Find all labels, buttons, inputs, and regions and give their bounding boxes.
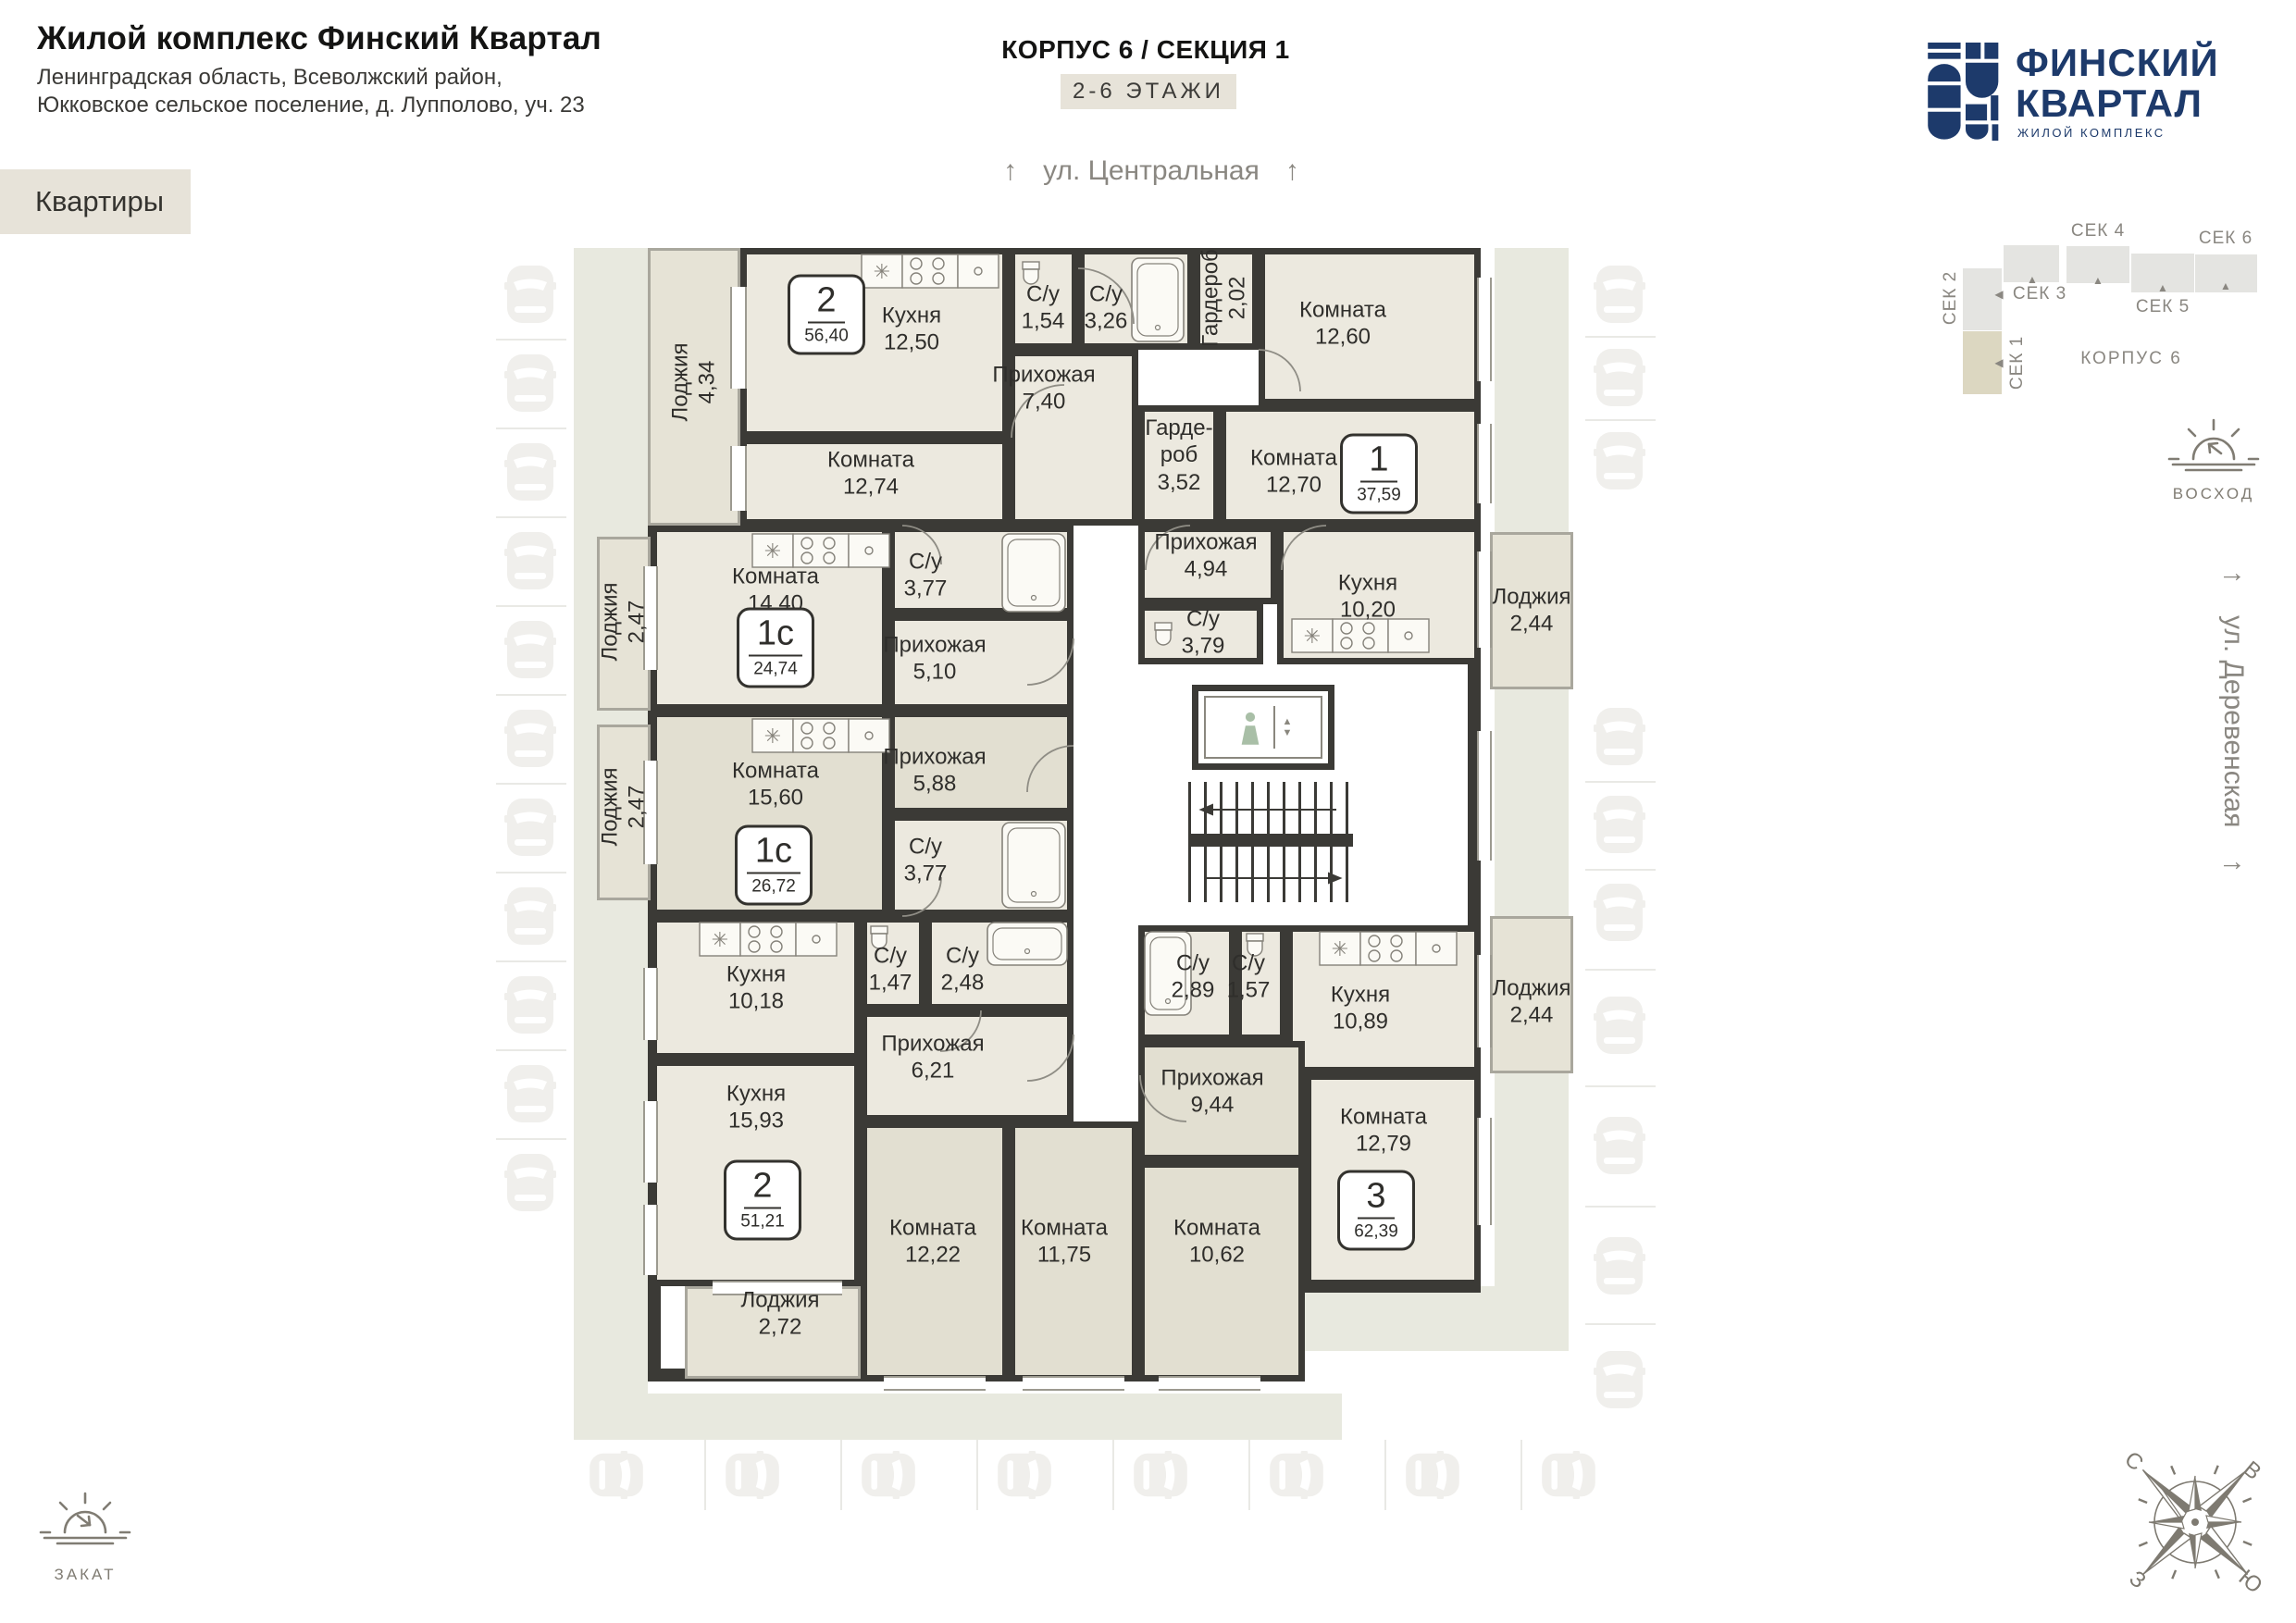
apartment-area: 24,74 [745, 657, 806, 680]
apartment-rooms-count: 1с [749, 614, 802, 656]
room-label-su379: С/у3,79 [1182, 606, 1225, 661]
room-name: Лоджия [597, 582, 624, 661]
apartment-badge-a2: 137,59 [1340, 433, 1418, 514]
room-name: Комната [732, 564, 819, 590]
room-area: 12,74 [827, 474, 914, 501]
room-label-su147: С/у1,47 [869, 943, 912, 997]
room-label-loggia247b: Лоджия2,47 [597, 767, 652, 846]
room-name: Комната [732, 758, 819, 785]
room-label-hall494: Прихожая4,94 [1154, 529, 1257, 584]
room-label-hall944: Прихожая9,44 [1160, 1065, 1263, 1120]
room-name: Прихожая [992, 362, 1095, 389]
room-area: 1,57 [1227, 977, 1271, 1004]
room-name: С/у [1022, 281, 1065, 308]
room-name: С/у [941, 943, 985, 970]
room-name: С/у [1085, 281, 1128, 308]
room-name: Лоджия [1492, 975, 1570, 1002]
room-area: 2,72 [740, 1314, 819, 1341]
room-label-hall740: Прихожая7,40 [992, 362, 1095, 416]
room-area: 10,20 [1338, 597, 1397, 624]
room-area: 1,54 [1022, 308, 1065, 335]
apartment-badge-a6: 362,39 [1337, 1170, 1415, 1250]
room-name: Лоджия [740, 1287, 819, 1314]
room-area: 2,47 [624, 582, 651, 661]
room-label-loggia434: Лоджия4,34 [667, 342, 722, 421]
room-name: Прихожая [881, 1031, 984, 1058]
apartment-badge-a1: 256,40 [788, 274, 865, 354]
room-label-kit1593: Кухня15,93 [726, 1081, 786, 1135]
room-area: 15,93 [726, 1108, 786, 1134]
apartment-badge-a4: 1с26,72 [735, 824, 813, 905]
room-area: 2,44 [1492, 1002, 1570, 1029]
room-name: Лоджия [1492, 584, 1570, 611]
apartment-rooms-count: 3 [1358, 1177, 1394, 1219]
room-name: Кухня [726, 1081, 786, 1108]
room-area: 4,94 [1154, 556, 1257, 583]
room-label-su289: С/у2,89 [1172, 950, 1215, 1005]
room-area: 12,22 [889, 1242, 976, 1269]
apartment-rooms-count: 2 [744, 1167, 780, 1208]
room-label-loggia244b: Лоджия2,44 [1492, 975, 1570, 1030]
room-area: 4,34 [694, 342, 721, 421]
room-area: 1,47 [869, 970, 912, 997]
room-name: Прихожая [883, 744, 986, 771]
room-name: С/у [869, 943, 912, 970]
room-name: Комната [889, 1215, 976, 1242]
room-label-room1175: Комната11,75 [1021, 1215, 1108, 1270]
room-label-su377b: С/у3,77 [904, 834, 948, 888]
room-label-room1222: Комната12,22 [889, 1215, 976, 1270]
room-name: Комната [1173, 1215, 1260, 1242]
room-area: 2,44 [1492, 611, 1570, 638]
apartment-area: 51,21 [732, 1209, 793, 1233]
room-area: 5,10 [883, 659, 986, 686]
room-label-loggia272: Лоджия2,72 [740, 1287, 819, 1342]
room-area: 2,47 [624, 767, 651, 846]
room-label-kit1089: Кухня10,89 [1331, 982, 1390, 1036]
room-name: С/у [904, 834, 948, 861]
room-area: 6,21 [881, 1058, 984, 1084]
room-label-room1062: Комната10,62 [1173, 1215, 1260, 1270]
room-name: Комната [1250, 445, 1337, 472]
room-name: Комната [827, 447, 914, 474]
room-name: Гарде- роб [1145, 415, 1212, 469]
room-label-hall621: Прихожая6,21 [881, 1031, 984, 1085]
room-label-room1270: Комната12,70 [1250, 445, 1337, 500]
room-label-su248: С/у2,48 [941, 943, 985, 997]
apartment-badge-a5: 251,21 [724, 1159, 801, 1240]
room-label-room1260: Комната12,60 [1299, 297, 1386, 352]
apartment-rooms-count: 1 [1360, 440, 1396, 482]
room-area: 12,60 [1299, 324, 1386, 351]
room-label-ward352: Гарде- роб3,52 [1145, 415, 1212, 496]
room-area: 10,89 [1331, 1009, 1390, 1035]
room-label-loggia244t: Лоджия2,44 [1492, 584, 1570, 638]
room-area: 12,79 [1340, 1131, 1427, 1158]
room-area: 11,75 [1021, 1242, 1108, 1269]
apartment-area: 26,72 [743, 874, 804, 898]
room-label-kit1018: Кухня10,18 [726, 961, 786, 1016]
room-area: 12,50 [882, 329, 941, 356]
room-name: Кухня [882, 303, 941, 329]
room-area: 2,89 [1172, 977, 1215, 1004]
room-name: Кухня [1331, 982, 1390, 1009]
room-name: Лоджия [667, 342, 694, 421]
apartment-area: 56,40 [796, 324, 857, 347]
room-area: 7,40 [992, 389, 1095, 415]
room-name: Прихожая [883, 632, 986, 659]
room-area: 3,26 [1085, 308, 1128, 335]
room-label-su377a: С/у3,77 [904, 549, 948, 603]
apartment-badge-a3: 1с24,74 [737, 607, 814, 688]
room-label-su154: С/у1,54 [1022, 281, 1065, 336]
room-label-ward202: Гардероб2,02 [1198, 249, 1252, 347]
room-area: 2,02 [1224, 249, 1251, 347]
apartment-rooms-count: 1с [747, 832, 800, 873]
room-area: 3,52 [1145, 469, 1212, 496]
room-name: Комната [1299, 297, 1386, 324]
room-area: 9,44 [1160, 1092, 1263, 1119]
room-label-hall588: Прихожая5,88 [883, 744, 986, 799]
room-name: Прихожая [1154, 529, 1257, 556]
room-name: Лоджия [597, 767, 624, 846]
room-label-hall510: Прихожая5,10 [883, 632, 986, 687]
room-area: 12,70 [1250, 472, 1337, 499]
page: Жилой комплекс Финский Квартал Ленинград… [0, 0, 2296, 1623]
room-area: 3,77 [904, 861, 948, 887]
room-name: Комната [1340, 1104, 1427, 1131]
room-name: С/у [1172, 950, 1215, 977]
room-label-kit1250: Кухня12,50 [882, 303, 941, 357]
room-label-su157: С/у1,57 [1227, 950, 1271, 1005]
room-name: С/у [904, 549, 948, 576]
door-arcs [0, 0, 2296, 1623]
room-label-loggia247a: Лоджия2,47 [597, 582, 652, 661]
room-name: Гардероб [1198, 249, 1224, 347]
room-name: С/у [1182, 606, 1225, 633]
room-label-room1560: Комната15,60 [732, 758, 819, 812]
room-name: Комната [1021, 1215, 1108, 1242]
room-area: 3,79 [1182, 633, 1225, 660]
room-name: Кухня [1338, 570, 1397, 597]
apartment-area: 62,39 [1346, 1220, 1407, 1243]
room-area: 10,18 [726, 988, 786, 1015]
room-area: 10,62 [1173, 1242, 1260, 1269]
room-label-room1279: Комната12,79 [1340, 1104, 1427, 1158]
room-area: 2,48 [941, 970, 985, 997]
room-area: 5,88 [883, 771, 986, 798]
room-label-room1274: Комната12,74 [827, 447, 914, 502]
room-name: Прихожая [1160, 1065, 1263, 1092]
room-name: С/у [1227, 950, 1271, 977]
apartment-rooms-count: 2 [808, 281, 844, 323]
room-name: Кухня [726, 961, 786, 988]
room-label-kit1020: Кухня10,20 [1338, 570, 1397, 625]
apartment-area: 37,59 [1348, 483, 1409, 506]
room-area: 15,60 [732, 785, 819, 811]
room-label-su326: С/у3,26 [1085, 281, 1128, 336]
room-area: 3,77 [904, 576, 948, 602]
